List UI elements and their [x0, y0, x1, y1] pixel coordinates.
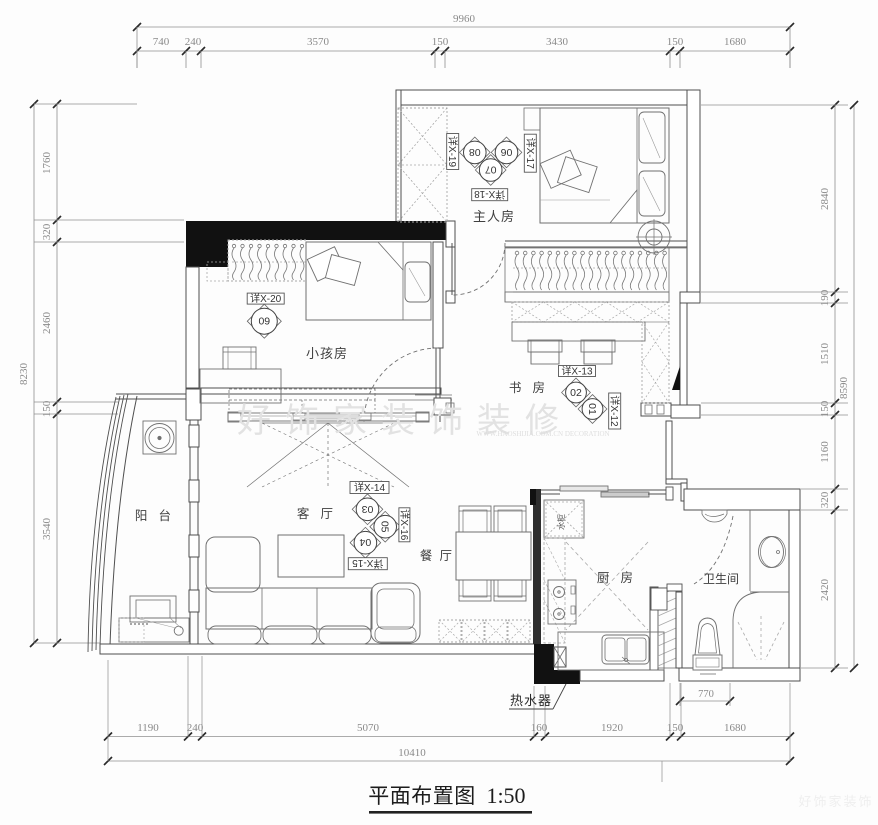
svg-text:770: 770	[698, 689, 714, 700]
svg-text:05: 05	[379, 521, 391, 533]
svg-text:10410: 10410	[398, 747, 426, 759]
svg-text:详X-18: 详X-18	[474, 188, 506, 201]
svg-text:740: 740	[153, 36, 170, 48]
svg-text:详X-14: 详X-14	[354, 481, 386, 494]
svg-text:04: 04	[359, 536, 371, 548]
svg-text:240: 240	[185, 36, 202, 48]
svg-text:餐 厅: 餐 厅	[420, 548, 454, 563]
svg-text:150: 150	[41, 400, 53, 417]
svg-text:详X-17: 详X-17	[524, 138, 537, 170]
svg-text:02: 02	[570, 387, 582, 399]
svg-text:3570: 3570	[307, 36, 330, 48]
svg-text:2840: 2840	[819, 188, 831, 211]
svg-text:详X-20: 详X-20	[250, 292, 282, 305]
svg-text:240: 240	[187, 722, 204, 734]
svg-text:主人房: 主人房	[473, 209, 515, 224]
svg-text:8230: 8230	[18, 363, 30, 386]
svg-text:详X-19: 详X-19	[446, 136, 459, 168]
svg-text:2460: 2460	[41, 312, 53, 335]
svg-text:08: 08	[469, 146, 481, 158]
svg-text:9960: 9960	[453, 13, 476, 25]
svg-text:1680: 1680	[724, 722, 747, 734]
svg-text:1760: 1760	[41, 152, 53, 175]
svg-text:1510: 1510	[819, 343, 831, 366]
svg-text:09: 09	[258, 316, 270, 328]
svg-text:320: 320	[41, 223, 53, 240]
svg-text:厨 房: 厨 房	[597, 570, 637, 585]
svg-text:06: 06	[501, 146, 513, 158]
svg-text:详X-12: 详X-12	[608, 395, 621, 427]
svg-text:320: 320	[819, 491, 831, 508]
svg-text:热水器: 热水器	[510, 693, 552, 708]
svg-text:1190: 1190	[137, 722, 159, 734]
svg-text:8590: 8590	[838, 377, 850, 400]
svg-text:1920: 1920	[601, 722, 624, 734]
svg-text:1680: 1680	[724, 36, 747, 48]
svg-text:2420: 2420	[819, 579, 831, 602]
svg-text:书 房: 书 房	[509, 380, 549, 395]
svg-text:平面布置图: 平面布置图	[368, 784, 476, 808]
svg-text:卫生间: 卫生间	[703, 572, 739, 586]
svg-text:详X-16: 详X-16	[398, 509, 411, 541]
svg-text:01: 01	[586, 403, 598, 415]
svg-text:阳 台: 阳 台	[135, 508, 175, 523]
svg-text:1:50: 1:50	[486, 783, 525, 808]
svg-text:3430: 3430	[546, 36, 569, 48]
svg-text:详X-15: 详X-15	[352, 557, 384, 570]
svg-text:07: 07	[485, 164, 497, 176]
svg-text:150: 150	[432, 36, 449, 48]
svg-text:好饰家装饰: 好饰家装饰	[798, 794, 873, 809]
svg-text:小孩房: 小孩房	[306, 346, 348, 361]
svg-text:03: 03	[362, 503, 374, 515]
svg-text:1160: 1160	[819, 441, 831, 463]
svg-text:5070: 5070	[357, 722, 380, 734]
svg-text:WWW.HAOSHIJIA.COM.CN DECORATIO: WWW.HAOSHIJIA.COM.CN DECORATION	[476, 430, 609, 438]
svg-text:3540: 3540	[41, 518, 53, 541]
svg-text:150: 150	[667, 36, 684, 48]
svg-text:水柜: 水柜	[556, 514, 566, 530]
svg-text:详X-13: 详X-13	[561, 365, 593, 378]
svg-text:客 厅: 客 厅	[297, 506, 337, 521]
